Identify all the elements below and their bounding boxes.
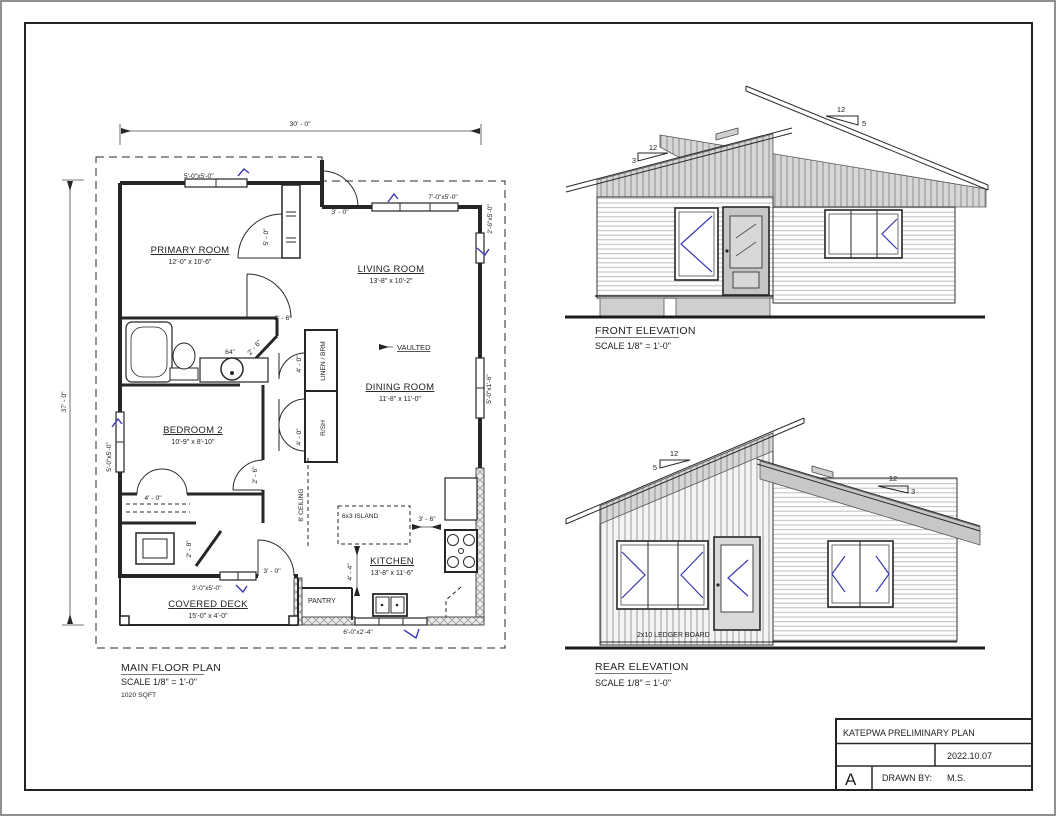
rear-elevation-scale: SCALE 1/8" = 1'-0" xyxy=(595,678,671,688)
front-pitch-main-run: 12 xyxy=(837,105,845,114)
dim-primary-closet: 5' - 0" xyxy=(263,228,270,246)
primary-room-size: 12'-0" x 10'-6" xyxy=(168,259,212,266)
drawing-sheet: KATEPWA PRELIMINARY PLAN 2022.10.07 A DR… xyxy=(0,0,1056,816)
kitchen-label: KITCHEN xyxy=(370,556,414,567)
rear-elevation-title-text: REAR ELEVATION xyxy=(595,661,689,673)
drawn-by-value: M.S. xyxy=(947,773,966,783)
rear-pitch-left-run: 12 xyxy=(670,449,678,458)
front-skirt-left xyxy=(600,298,664,317)
linen-closet-label: LINEN / BRM xyxy=(320,341,327,381)
vanity-width-label: 64" xyxy=(225,349,235,356)
dim-entry-door: 3' - 0" xyxy=(331,209,349,216)
deck-label: COVERED DECK xyxy=(168,599,248,610)
pantry-label: PANTRY xyxy=(308,598,336,605)
bedroom2-label: BEDROOM 2 xyxy=(163,425,223,436)
window-primary-top xyxy=(185,179,247,187)
dining-room-label: DINING ROOM xyxy=(366,382,435,393)
page-frame xyxy=(1,1,1055,815)
dim-linen-width: 4' - 0" xyxy=(296,355,303,373)
label-window-living-right: 2'-6"x5'-0" xyxy=(487,204,494,234)
dim-hall-width: 2' - 6" xyxy=(274,315,292,322)
shelf-closet-label: R/SH xyxy=(320,420,327,436)
label-window-bedroom-bottom: 3'-0"x5'-0" xyxy=(192,585,222,592)
front-pitch-main-rise: 5 xyxy=(862,119,866,128)
stove xyxy=(445,530,477,572)
island-label: 6x3 ISLAND xyxy=(342,513,379,520)
floor-plan-area: 1020 SQFT xyxy=(121,692,156,699)
label-window-living-top: 7'-0"x5'-0" xyxy=(428,194,458,201)
living-room-label: LIVING ROOM xyxy=(358,264,425,275)
rear-pitch-right-run: 12 xyxy=(889,474,897,483)
front-elevation-title-text: FRONT ELEVATION xyxy=(595,325,696,337)
label-window-primary: 5'-0"x5'-0" xyxy=(184,173,214,180)
window-kitchen-patio xyxy=(355,618,427,625)
deck-size: 15'-0" x 4'-0" xyxy=(188,613,228,620)
front-skirt-right xyxy=(676,298,770,317)
window-living-top xyxy=(372,203,458,211)
front-porch-window xyxy=(675,208,718,280)
dim-37ft: 37' - 0" xyxy=(61,391,68,413)
project-title: KATEPWA PRELIMINARY PLAN xyxy=(843,728,975,738)
living-room-size: 13'-8" x 10'-2" xyxy=(369,278,413,285)
window-dining-right xyxy=(476,358,484,418)
front-door xyxy=(723,207,769,295)
front-pitch-porch-rise: 3 xyxy=(632,156,636,165)
dim-shelf-width: 4' - 0" xyxy=(296,428,303,446)
dim-mech-door: 2' - 8" xyxy=(186,540,193,558)
dim-kitchen-aisle: 4' - 4" xyxy=(347,563,354,581)
rear-right-window xyxy=(828,541,893,607)
title-block: KATEPWA PRELIMINARY PLAN 2022.10.07 A DR… xyxy=(836,719,1032,790)
architectural-drawing: KATEPWA PRELIMINARY PLAN 2022.10.07 A DR… xyxy=(0,0,1056,816)
dim-30ft: 30' - 0" xyxy=(289,121,311,128)
ceiling-label: 8' CEILING xyxy=(298,488,305,521)
rear-pitch-left-rise: 5 xyxy=(653,463,657,472)
vaulted-label: VAULTED xyxy=(397,343,431,352)
label-window-bedroom-left: 5'-0"x5'-0" xyxy=(106,442,113,472)
drawn-by-label: DRAWN BY: xyxy=(882,773,932,783)
bedroom2-size: 10'-9" x 8'-10" xyxy=(171,439,215,446)
sheet-letter: A xyxy=(845,770,857,789)
dim-bedroom-door: 2' - 6" xyxy=(252,466,259,484)
floor-plan-scale: SCALE 1/8" = 1'-0" xyxy=(121,677,197,687)
dining-room-size: 11'-8" x 11'-0" xyxy=(379,396,422,403)
primary-room-label: PRIMARY ROOM xyxy=(151,245,230,256)
label-window-patio: 6'-0"x2'-4" xyxy=(343,629,373,636)
dim-bedroom-closet: 4' - 0" xyxy=(144,495,162,502)
rear-pitch-right-rise: 3 xyxy=(911,487,915,496)
front-right-window xyxy=(825,210,902,258)
front-elevation-scale: SCALE 1/8" = 1'-0" xyxy=(595,341,671,351)
page-edge xyxy=(1,1,1055,815)
label-window-dining-right: 5'-0"x1'-6" xyxy=(486,374,493,404)
date-value: 2022.10.07 xyxy=(947,751,992,761)
dim-island-clearance: 3' - 6" xyxy=(418,516,436,523)
rear-door xyxy=(714,537,760,630)
floor-plan-title-text: MAIN FLOOR PLAN xyxy=(121,662,221,674)
front-pitch-porch-run: 12 xyxy=(649,143,657,152)
dim-deck-door: 3' - 0" xyxy=(263,568,281,575)
fridge xyxy=(445,478,477,520)
kitchen-size: 13'-8" x 11'-6" xyxy=(371,570,414,577)
rear-left-window xyxy=(617,541,708,609)
mech-room xyxy=(136,533,174,564)
ledger-board-label: 2x10 LEDGER BOARD xyxy=(637,632,710,639)
window-bedroom-bottom xyxy=(220,572,256,580)
kitchen-sink xyxy=(373,594,407,616)
